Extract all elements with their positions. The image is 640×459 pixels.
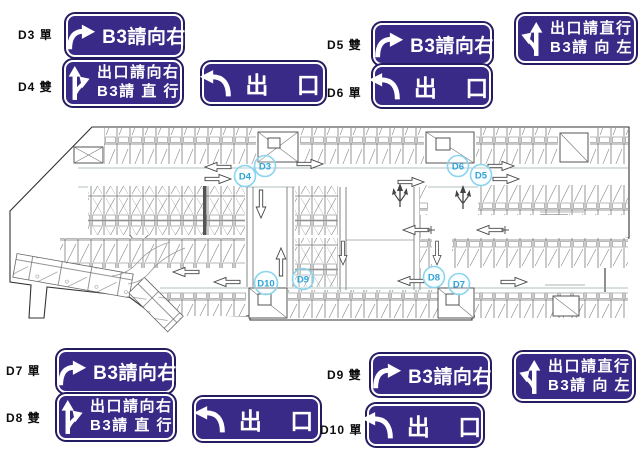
plan-marker-d3: D3 — [259, 162, 271, 173]
sign-text-line1: 出口請直行 — [548, 358, 631, 377]
sign-text: 出 口 — [245, 66, 330, 100]
sign-d10-exit: 出 口 — [367, 404, 483, 446]
sign-text-line2: B3請 直 行 — [97, 83, 180, 102]
curve-right-arrow-icon — [371, 28, 405, 60]
sign-text: B3請向右 — [102, 22, 186, 49]
hook-left-arrow-icon — [358, 409, 398, 441]
sign-d4-exit-right: 出口請向右 B3請 直 行 — [64, 60, 182, 106]
zone-label-d7: D7 單 — [6, 362, 41, 379]
sign-d6-exit: 出 口 — [373, 65, 491, 107]
curve-right-arrow-icon — [54, 356, 88, 388]
zone-label-d8: D8 雙 — [6, 409, 41, 426]
sign-bottom-center-exit: 出 口 — [194, 397, 320, 441]
zone-label-d6: D6 單 — [327, 84, 362, 101]
sign-text: B3請向右 — [93, 358, 177, 385]
zone-label-d3: D3 單 — [18, 26, 53, 43]
sign-text: 出 口 — [239, 402, 324, 436]
plan-marker-d6: D6 — [452, 162, 464, 173]
fork-right-arrow-icon — [59, 399, 85, 435]
zone-label-d10: D10 單 — [320, 421, 362, 438]
sign-d3-b3-turn-right: B3請向右 — [66, 14, 183, 57]
hook-left-arrow-icon — [365, 70, 405, 102]
fork-right-arrow-icon — [66, 65, 92, 101]
sign-text: 出 口 — [414, 69, 499, 103]
sign-plan-page: D3 D4 D5 D6 D7 D8 D9 D10 D3 單 B3請向右 D5 雙… — [0, 0, 640, 459]
sign-text-line2: B3請 直 行 — [90, 417, 173, 436]
top-stall-row — [104, 128, 628, 164]
sign-d5-b3-turn-right: B3請向右 — [373, 23, 492, 65]
sign-text-line2: B3請 向 左 — [548, 377, 631, 396]
sign-top-center-exit: 出 口 — [202, 62, 325, 104]
sign-d8-exit-right: 出口請向右 B3請 直 行 — [57, 394, 175, 440]
zone-label-d5: D5 雙 — [327, 36, 362, 53]
hook-left-arrow-icon — [196, 67, 236, 99]
zone-label-d4: D4 雙 — [18, 78, 53, 95]
zone-label-d9: D9 雙 — [327, 366, 362, 383]
plan-marker-d9: D9 — [297, 275, 309, 286]
curve-right-arrow-icon — [63, 20, 97, 52]
curve-right-arrow-icon — [369, 359, 403, 391]
sign-text-line1: 出口請向右 — [97, 64, 180, 83]
plan-marker-d5: D5 — [475, 171, 488, 182]
sign-text-line1: 出口請向右 — [90, 398, 173, 417]
plan-marker-d4: D4 — [239, 172, 252, 183]
sign-text-line1: 出口請直行 — [550, 20, 633, 39]
plan-marker-d7: D7 — [453, 280, 465, 291]
plan-marker-d8: D8 — [428, 273, 440, 284]
sign-d7-b3-turn-right: B3請向右 — [57, 350, 174, 393]
sign-bottom-right-exit-straight: 出口請直行 B3請 向 左 — [514, 352, 634, 401]
sign-top-right-exit-straight: 出口請直行 B3請 向 左 — [516, 14, 636, 63]
sign-text: 出 口 — [407, 408, 492, 442]
plan-marker-d10: D10 — [257, 279, 274, 290]
sign-d9-b3-turn-right: B3請向右 — [371, 354, 490, 396]
fork-left-arrow-icon — [517, 359, 543, 395]
sign-text: B3請向右 — [408, 362, 492, 389]
sign-text: B3請向右 — [410, 31, 494, 58]
fork-left-arrow-icon — [519, 21, 545, 57]
hook-left-arrow-icon — [190, 403, 230, 435]
sign-text-line2: B3請 向 左 — [550, 39, 633, 58]
